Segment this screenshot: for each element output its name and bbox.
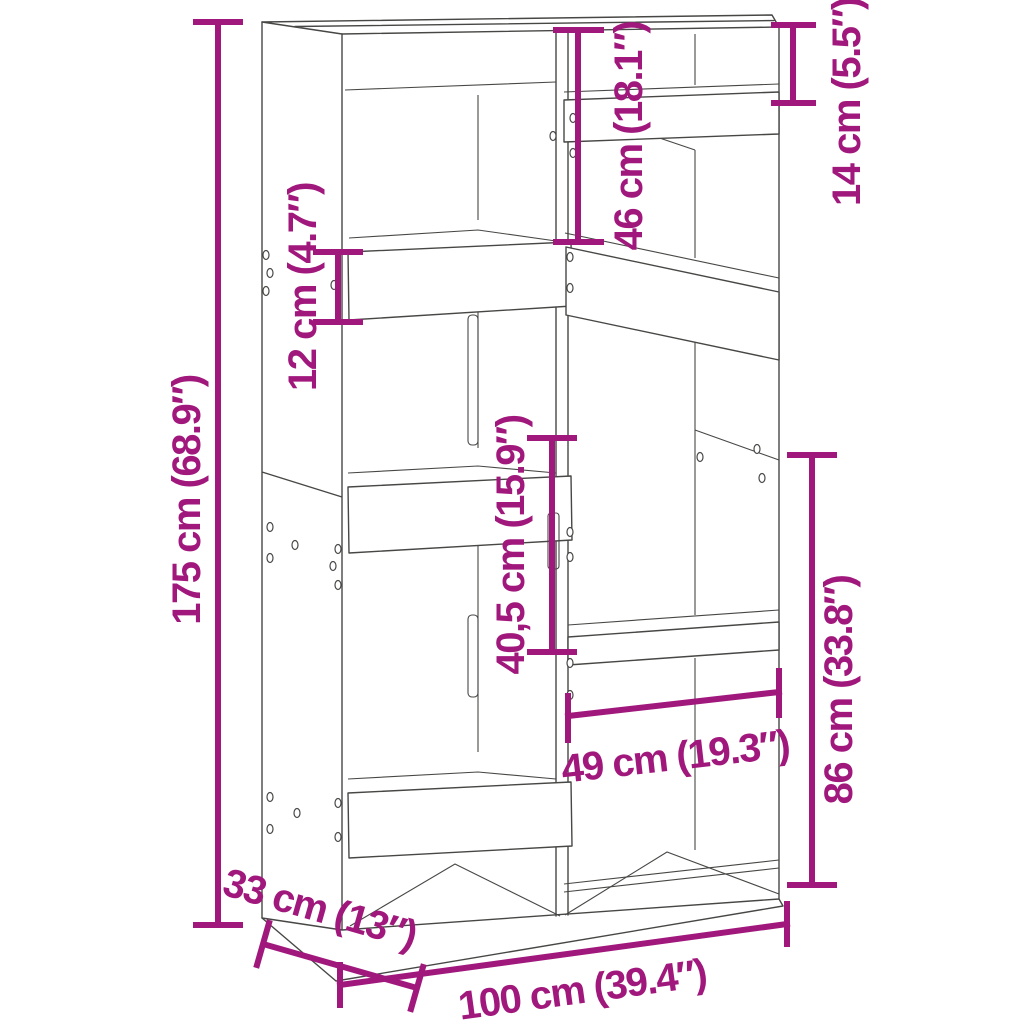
dimension-middle-40-5: 40,5 cm (15.9″) <box>489 415 574 674</box>
dimension-label-top-right: 14 cm (5.5″) <box>825 0 869 206</box>
dimension-label-middle: 40,5 cm (15.9″) <box>489 415 533 674</box>
cabinet-top-face <box>262 15 779 34</box>
left-shelf-bands <box>348 230 572 858</box>
dimension-label-left-gap: 12 cm (4.7″) <box>281 183 325 391</box>
shelf-band <box>348 476 572 553</box>
shelf-band <box>348 782 572 858</box>
shelf-band <box>566 247 779 360</box>
dimension-height-175: 175 cm (68.9″) <box>165 22 240 925</box>
shelf-band <box>348 242 572 320</box>
furniture-dimension-diagram: 175 cm (68.9″) 46 cm (18.1″) 14 cm (5.5″… <box>0 0 1024 1024</box>
dimension-top-right-14: 14 cm (5.5″) <box>774 0 869 206</box>
dimension-right-height-86: 86 cm (33.8″) <box>790 455 861 885</box>
diagram-canvas: 175 cm (68.9″) 46 cm (18.1″) 14 cm (5.5″… <box>0 0 1024 1024</box>
dimension-depth-33: 33 cm (13″) <box>218 860 423 1009</box>
dimension-label-right-width: 49 cm (19.3″) <box>559 722 791 792</box>
dimension-label-right-height: 86 cm (33.8″) <box>817 575 861 804</box>
dimension-label-height: 175 cm (68.9″) <box>165 375 209 625</box>
shelf-band <box>564 92 779 142</box>
dimension-label-depth: 33 cm (13″) <box>218 860 421 957</box>
dimension-annotations: 175 cm (68.9″) 46 cm (18.1″) 14 cm (5.5″… <box>165 0 869 1024</box>
shelf-band <box>568 622 779 665</box>
dimension-right-width-49: 49 cm (19.3″) <box>559 671 791 792</box>
back-panel-batten <box>468 615 478 697</box>
dimension-label-top-middle: 46 cm (18.1″) <box>607 21 651 250</box>
back-panel-batten <box>468 315 478 445</box>
